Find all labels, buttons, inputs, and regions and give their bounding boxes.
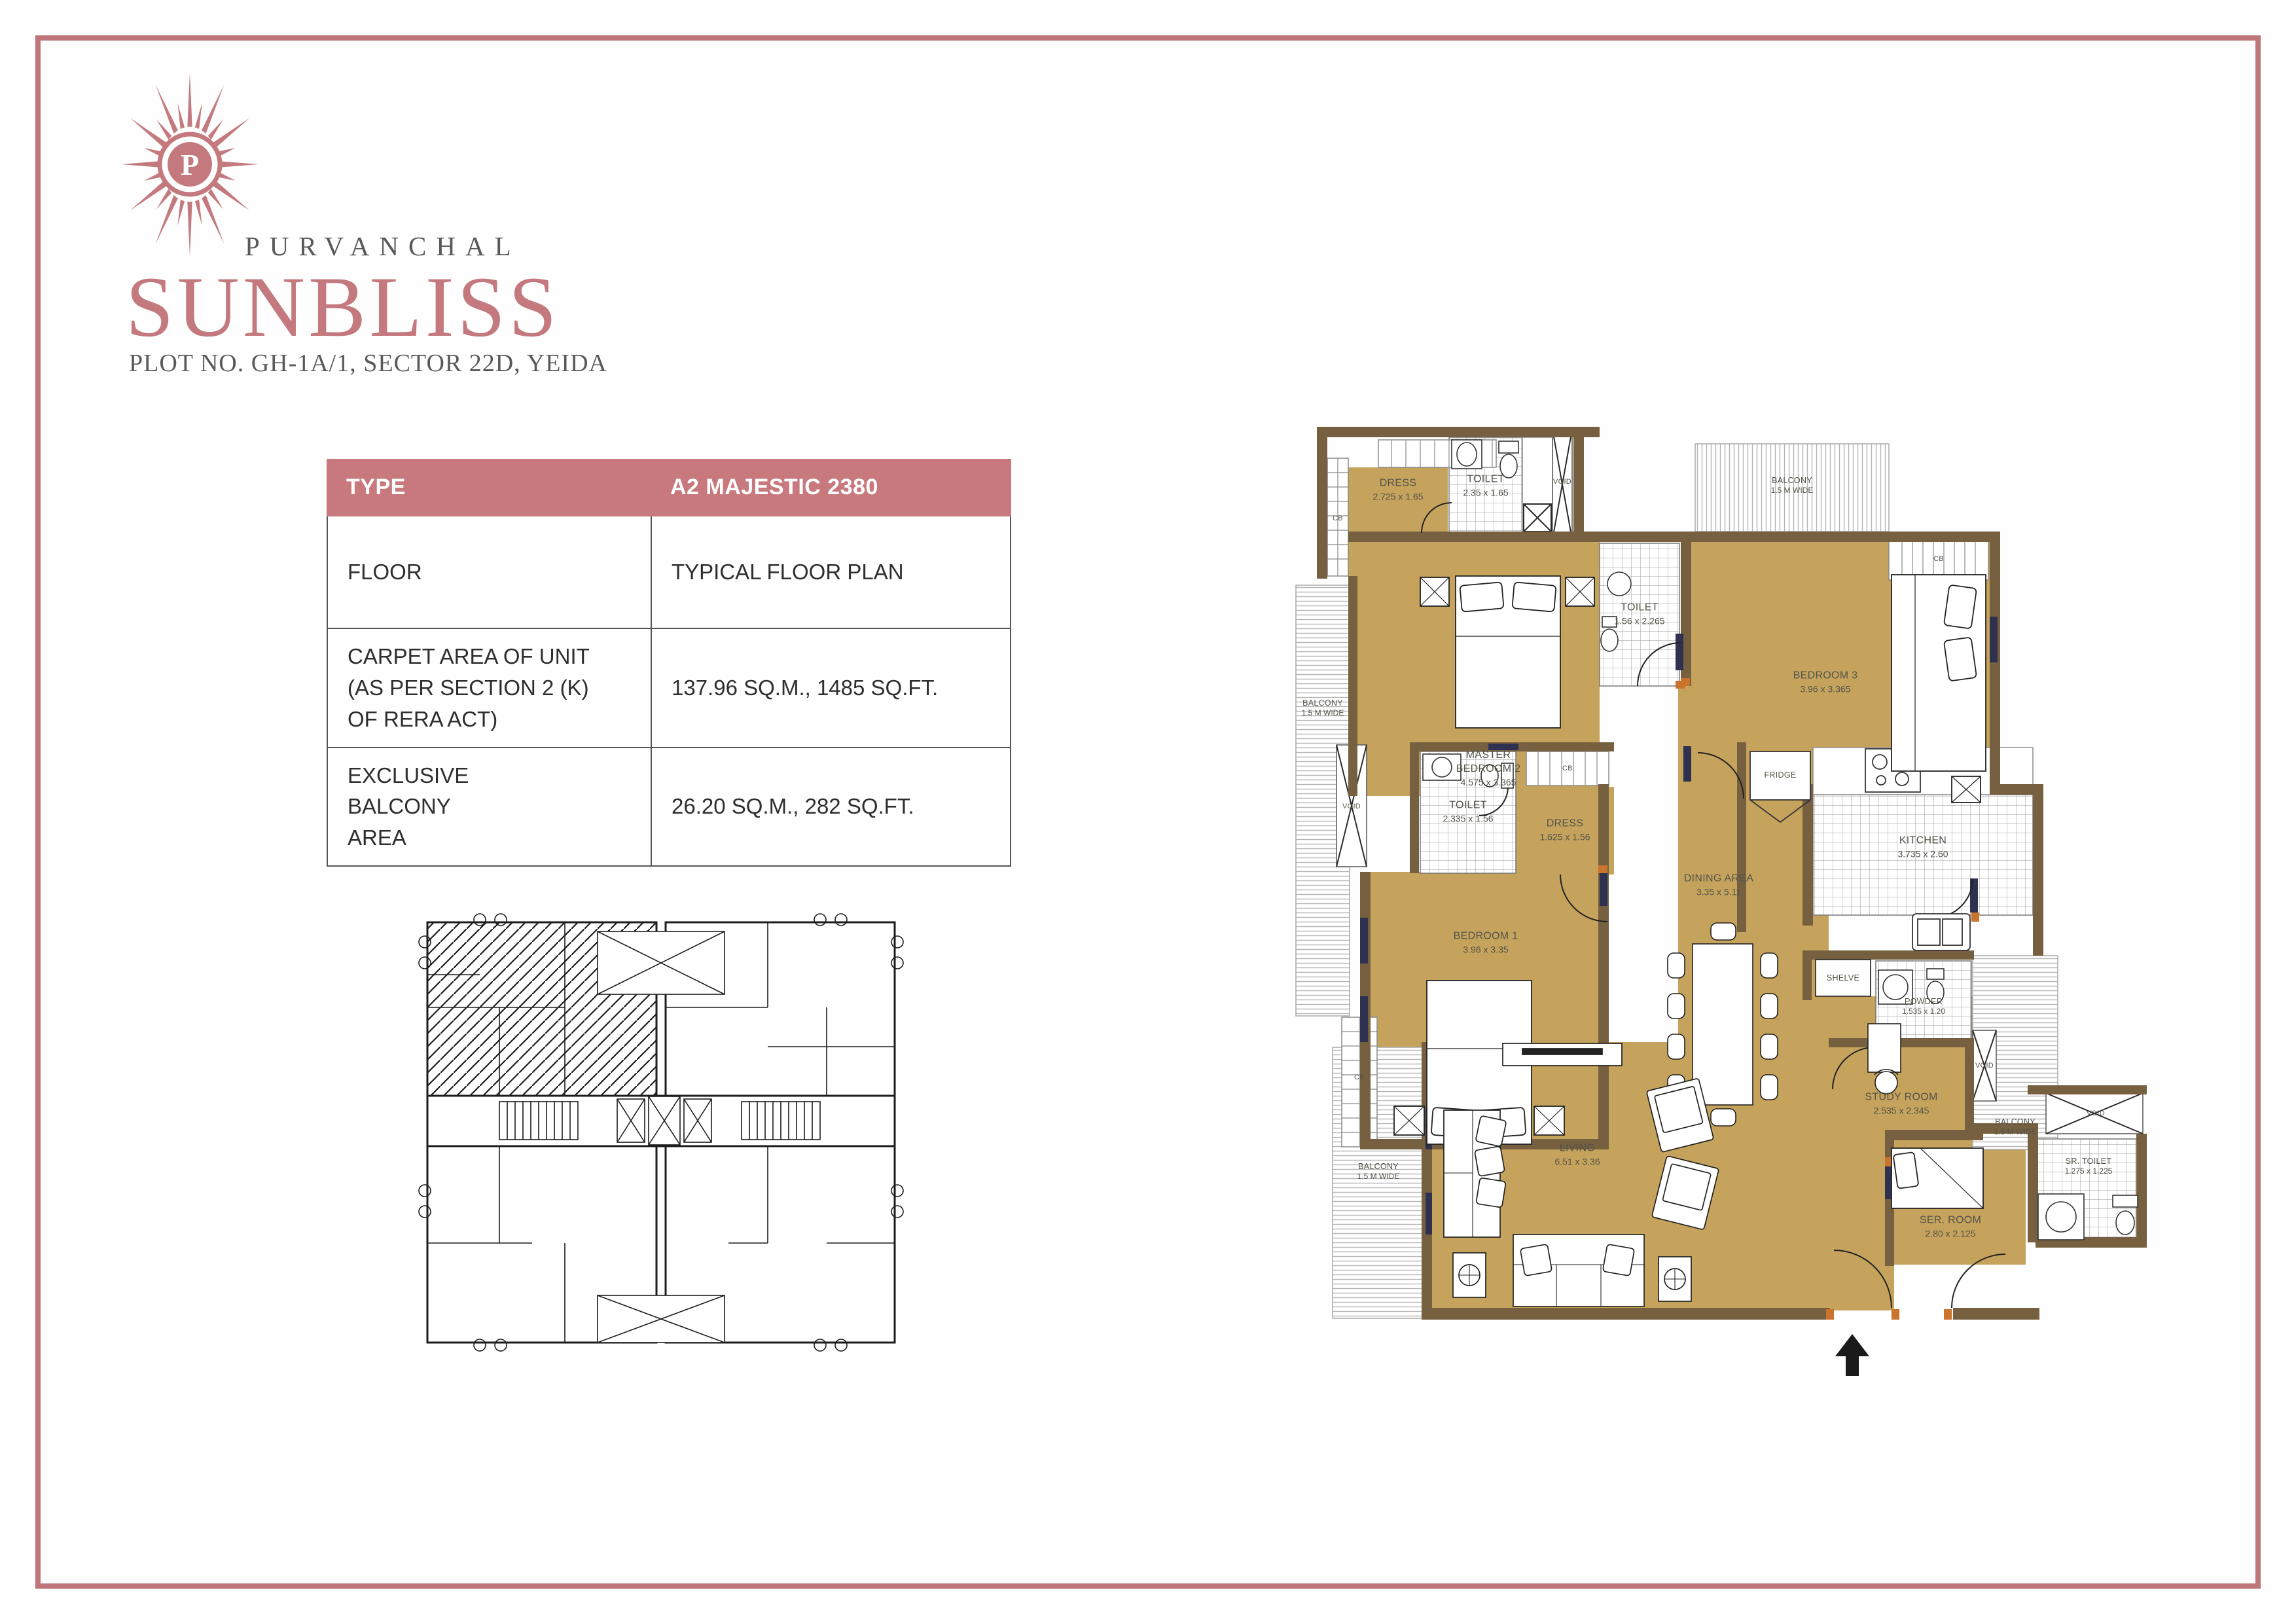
room-label-kitchen: KITCHEN3.735 x 2.60	[1897, 835, 1948, 860]
room-label-balcony: BALCONY1.5 M WIDE	[1994, 1117, 2037, 1138]
room-label-living: LIVING6.51 x 3.36	[1554, 1142, 1600, 1168]
room-label-bedroom-1: BEDROOM 13.96 x 3.35	[1454, 930, 1518, 956]
room-label-void: VOID	[1342, 802, 1361, 811]
room-label-sr-toilet: SR. TOILET1.275 x 1.225	[2065, 1156, 2113, 1177]
room-label-toilet: TOILET1.56 x 2.265	[1614, 602, 1664, 627]
row-value: 26.20 SQ.M., 282 SQ.FT.	[652, 779, 1010, 834]
row-value: 137.96 SQ.M., 1485 SQ.FT.	[652, 660, 1010, 715]
room-label-cb: CB	[1354, 1073, 1365, 1082]
project-name: SUNBLISS	[126, 257, 560, 357]
table-row: EXCLUSIVE BALCONY AREA 26.20 SQ.M., 282 …	[327, 748, 1011, 867]
room-label-cb: CB	[1562, 764, 1573, 773]
room-label-balcony: BALCONY1.5 M WIDE	[1357, 1161, 1400, 1182]
room-label-dining-area: DINING AREA3.35 x 5.11	[1684, 873, 1753, 898]
room-label-cb: CB	[1333, 514, 1343, 523]
room-label-void: VOID	[1553, 477, 1571, 486]
row-label: CARPET AREA OF UNIT (AS PER SECTION 2 (K…	[328, 629, 652, 747]
unit-floor-plan: DRESS2.725 x 1.65 TOILET2.35 x 1.65 VOID…	[1292, 420, 2183, 1382]
room-label-toilet: TOILET2.335 x 1.56	[1443, 799, 1493, 825]
brochure-page: P PURVANCHAL SUNBLISS PLOT NO. GH-1A/1, …	[0, 0, 2296, 1624]
table-row: CARPET AREA OF UNIT (AS PER SECTION 2 (K…	[327, 629, 1011, 748]
row-value: TYPICAL FLOOR PLAN	[652, 545, 1010, 600]
spec-table-header: TYPE A2 MAJESTIC 2380	[327, 459, 1011, 516]
floor-plan-drawing	[1292, 420, 2183, 1382]
spec-header-unit: A2 MAJESTIC 2380	[651, 460, 1011, 515]
room-label-shelve: SHELVE	[1827, 973, 1859, 983]
room-label-ser-room: SER. ROOM2.80 x 2.125	[1920, 1214, 1981, 1240]
room-label-fridge: FRIDGE	[1764, 770, 1796, 780]
plot-address: PLOT NO. GH-1A/1, SECTOR 22D, YEIDA	[129, 349, 607, 378]
room-label-void: VOID	[2087, 1109, 2105, 1118]
room-label-cb: CB	[1933, 554, 1944, 564]
room-label-dress: DRESS1.625 x 1.56	[1539, 818, 1590, 843]
row-label: FLOOR	[328, 516, 652, 628]
room-label-balcony: BALCONY1.5 M WIDE	[1771, 475, 1814, 496]
room-label-balcony: BALCONY1.5 M WIDE	[1302, 698, 1344, 719]
spec-table: TYPE A2 MAJESTIC 2380 FLOOR TYPICAL FLOO…	[327, 459, 1011, 867]
room-label-study-room: STUDY ROOM2.535 x 2.345	[1865, 1091, 1937, 1117]
room-label-void: VOID	[1975, 1061, 1994, 1070]
room-label-master-bedroom-2: MASTER BEDROOM 24.575 x 3.365	[1445, 749, 1532, 788]
key-plan	[401, 876, 921, 1366]
room-label-bedroom-3: BEDROOM 33.96 x 3.365	[1793, 670, 1858, 695]
spec-header-type: TYPE	[327, 460, 651, 515]
logo-letter: P	[181, 148, 199, 181]
table-row: FLOOR TYPICAL FLOOR PLAN	[327, 516, 1011, 629]
room-label-dress: DRESS2.725 x 1.65	[1372, 477, 1423, 503]
room-label-powder: POWDER1.535 x 1.20	[1902, 996, 1945, 1017]
entrance-arrow	[1835, 1334, 1869, 1376]
room-label-toilet: TOILET2.35 x 1.65	[1463, 473, 1508, 499]
row-label: EXCLUSIVE BALCONY AREA	[328, 748, 652, 866]
